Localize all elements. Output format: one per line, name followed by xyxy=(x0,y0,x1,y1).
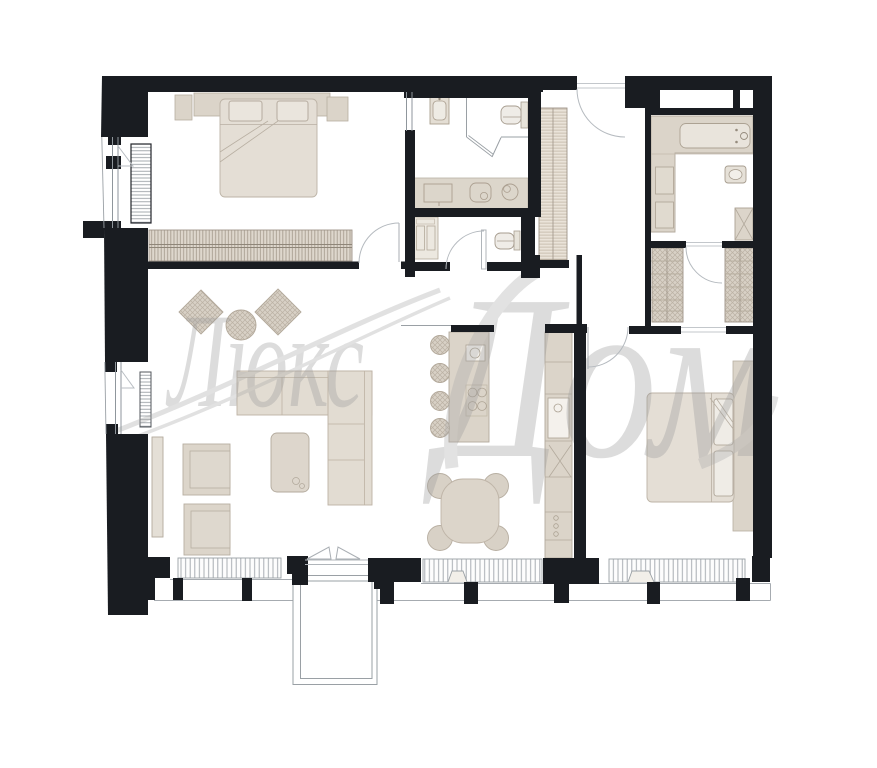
svg-text:Дом: Дом xyxy=(422,247,773,507)
